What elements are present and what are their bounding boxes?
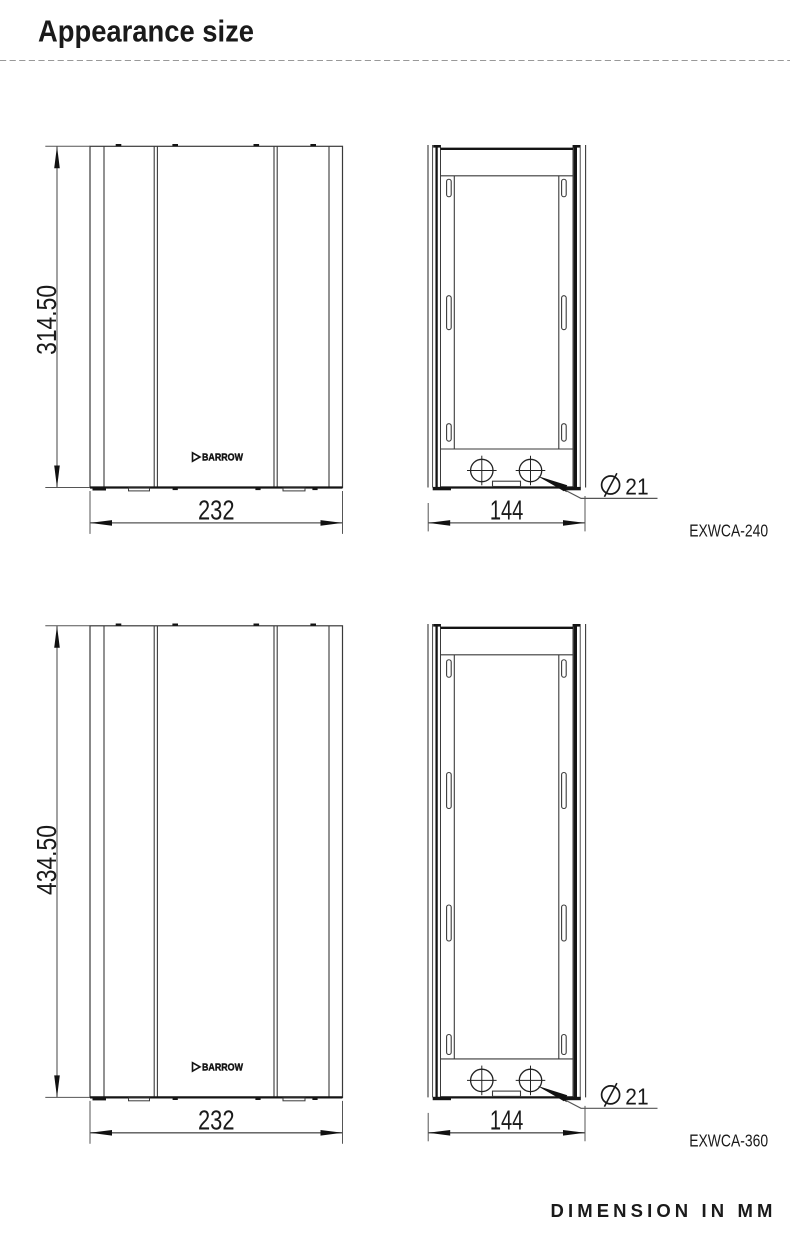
svg-text:232: 232 [198, 495, 235, 526]
svg-text:144: 144 [490, 1105, 524, 1136]
svg-text:BARROW: BARROW [202, 452, 243, 464]
svg-text:434.50: 434.50 [31, 825, 62, 895]
svg-text:314.50: 314.50 [31, 285, 62, 355]
svg-text:BARROW: BARROW [202, 1062, 243, 1074]
svg-text:232: 232 [198, 1105, 235, 1136]
svg-text:DIMENSION IN MM: DIMENSION IN MM [551, 1201, 777, 1221]
svg-text:Appearance size: Appearance size [38, 14, 254, 49]
svg-text:144: 144 [490, 495, 524, 526]
svg-text:21: 21 [625, 1084, 648, 1110]
svg-text:EXWCA-240: EXWCA-240 [689, 521, 768, 541]
svg-text:EXWCA-360: EXWCA-360 [689, 1130, 768, 1150]
svg-text:21: 21 [625, 474, 648, 500]
